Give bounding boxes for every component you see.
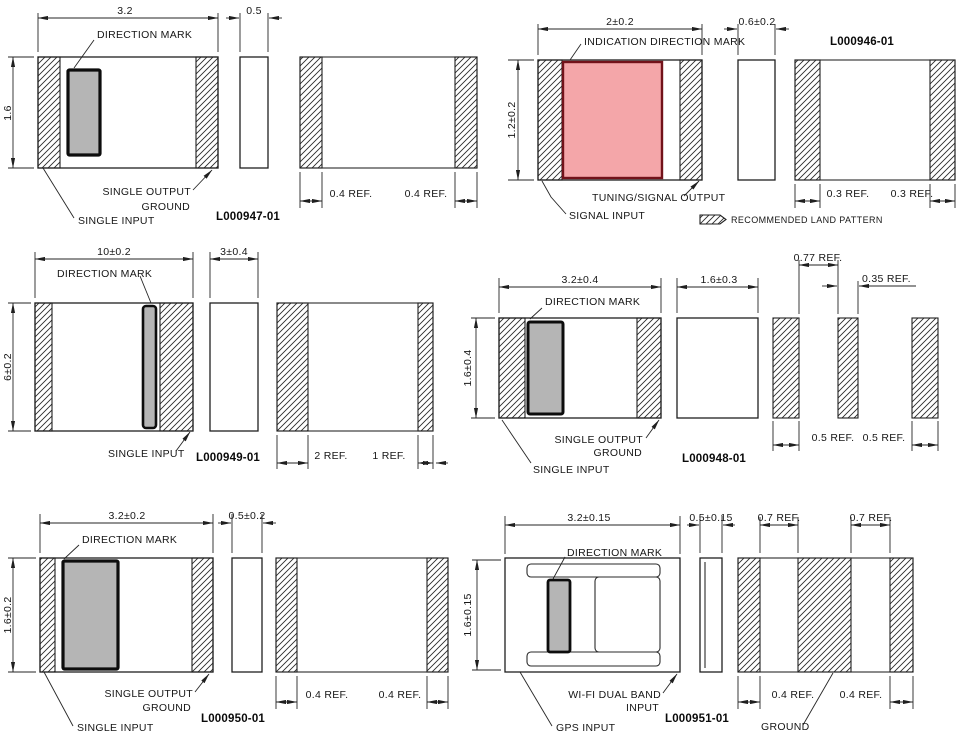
land-outline [276,558,448,672]
terminal-right [196,57,218,168]
land-pad-right [455,57,477,168]
direction-mark-label: DIRECTION MARK [545,296,640,308]
pad-left-dim-label: 0.5 REF. [812,432,855,444]
land-pad-center [838,318,858,418]
legend-label: RECOMMENDED LAND PATTERN [731,215,883,225]
front-view [40,558,213,672]
pad-right-dim-label: 1 REF. [372,450,405,462]
panel-L000949-01: 10±0.2 6±0.2 DIRECTION MARK SINGLE INPUT… [2,246,448,469]
side-body [232,558,262,672]
pad-left-dim-label: 0.4 REF. [330,188,373,200]
side-view: 0.5±0.15 [687,512,735,672]
front-view [538,60,702,180]
pad-right-dim-label: 0.4 REF. [840,689,883,701]
front-view [505,558,680,672]
gap-right-dim-label: 0.7 REF. [850,512,893,524]
part-number: L000948-01 [682,453,746,465]
body-top-contour [527,564,660,577]
input-label: SINGLE INPUT [77,722,154,734]
input-label: SINGLE INPUT [533,464,610,476]
dim-thickness-label: 0.5 [246,5,262,17]
dim-height-label: 6±0.2 [2,353,14,381]
pad-right-dim-label: 0.4 REF. [405,188,448,200]
part-number: L000947-01 [216,211,280,223]
dim-height-label: 1.2±0.2 [506,101,518,138]
panel-L000951-01: 3.2±0.15 1.6±0.15 DIRECTION MARK WI-FI D… [462,512,913,734]
pad-left-dim-label: 0.4 REF. [306,689,349,701]
land-pad-right [890,558,913,672]
pad-left-dim-label: 0.3 REF. [827,188,870,200]
output-label-line2: GROUND [143,702,192,714]
output-label-line1: WI-FI DUAL BAND [568,689,661,701]
dim-width-label: 3.2 [117,5,133,17]
land-pad-right [427,558,448,672]
land-pad-right [930,60,955,180]
part-number: L000946-01 [830,36,894,48]
dim-thickness-label: 0.5±0.15 [689,512,732,524]
panel-L000947-01: 3.2 1.6 DIRECTION MARK SINGLE OUTPUT GRO… [2,5,477,227]
side-view: 0.5 [226,5,282,168]
terminal-left [499,318,525,418]
body-bottom-contour [527,652,660,666]
land-outline [300,57,477,168]
dim-width-label: 2±0.2 [606,16,634,28]
direction-mark-label: DIRECTION MARK [567,547,662,559]
output-label-line1: SINGLE OUTPUT [555,434,644,446]
terminal-right [637,318,661,418]
output-label-line2: GROUND [142,201,191,213]
input-label: GPS INPUT [556,722,616,734]
direction-mark [63,561,118,669]
front-view [499,318,661,418]
side-view: 3±0.4 [210,246,258,431]
direction-mark [528,322,563,414]
pad-right-dim-label: 0.5 REF. [863,432,906,444]
dim-width-label: 3.2±0.4 [561,274,598,286]
part-number: L000951-01 [665,713,729,725]
output-label-line1: SINGLE OUTPUT [105,688,194,700]
land-pad-left [277,303,308,431]
dim-thickness-label: 0.5±0.2 [228,510,265,522]
terminal-right [680,60,702,180]
pad-left-dim-label: 0.4 REF. [772,689,815,701]
land-pattern: 2 REF. 1 REF. [277,303,448,469]
direction-mark-label: INDICATION DIRECTION MARK [584,36,745,48]
terminal-left [35,303,52,431]
side-body [677,318,758,418]
part-number: L000950-01 [201,713,265,725]
panel-L000946-01: 2±0.2 1.2±0.2 INDICATION DIRECTION MARK … [506,16,955,225]
dim-height-label: 1.6±0.15 [462,593,474,636]
land-pad-center [798,558,851,672]
side-body [240,57,268,168]
input-label: SINGLE INPUT [108,448,185,460]
package-body [505,558,680,672]
dim-thickness-label: 3±0.4 [220,246,248,258]
land-pad-left [300,57,322,168]
side-body [738,60,775,180]
output-label-line2: INPUT [626,702,659,714]
land-pad-right [912,318,938,418]
ground-label: GROUND [761,721,810,733]
terminal-left [38,57,60,168]
terminal-left [538,60,562,180]
land-pattern: 0.3 REF. 0.3 REF. [795,60,955,208]
front-view [38,57,218,168]
pad-left-dim-label: 2 REF. [314,450,347,462]
terminal-left [40,558,55,672]
center-pad-dim-label: 0.35 REF. [862,273,911,285]
land-pattern: 0.7 REF. 0.7 REF. 0.4 REF. 0.4 REF. [738,512,913,709]
dim-width-label: 10±0.2 [97,246,131,258]
land-pad-left [276,558,297,672]
output-label-line1: SINGLE OUTPUT [103,186,192,198]
package-drawings-canvas: 3.2 1.6 DIRECTION MARK SINGLE OUTPUT GRO… [0,0,965,737]
panel-L000950-01: 3.2±0.2 1.6±0.2 DIRECTION MARK SINGLE OU… [2,510,448,734]
output-label-line2: GROUND [594,447,643,459]
land-pad-left [795,60,820,180]
indication-direction-mark [563,62,662,178]
panel-L000948-01: 3.2±0.4 1.6±0.4 DIRECTION MARK SINGLE OU… [462,252,938,476]
input-label: SINGLE INPUT [78,215,155,227]
land-pattern: 0.4 REF. 0.4 REF. [300,57,477,208]
direction-mark-label: DIRECTION MARK [57,268,152,280]
direction-mark-label: DIRECTION MARK [82,534,177,546]
drawing-sheet: 3.2 1.6 DIRECTION MARK SINGLE OUTPUT GRO… [0,0,965,737]
gap-left-dim-label: 0.7 REF. [758,512,801,524]
land-pattern: 0.4 REF. 0.4 REF. [276,558,448,709]
legend: RECOMMENDED LAND PATTERN [700,215,883,225]
direction-mark [548,580,570,652]
dim-height-label: 1.6±0.2 [2,596,14,633]
package-body [38,57,218,168]
dim-thickness-label: 0.6±0.2 [738,16,775,28]
land-pattern-swatch-icon [700,215,726,224]
side-view: 0.5±0.2 [218,510,276,672]
part-number: L000949-01 [196,452,260,464]
pad-right-dim-label: 0.3 REF. [891,188,934,200]
dim-width-label: 3.2±0.15 [567,512,610,524]
pad-right-dim-label: 0.4 REF. [379,689,422,701]
direction-mark-label: DIRECTION MARK [97,29,192,41]
land-pad-left [773,318,799,418]
land-pad-left [738,558,760,672]
dim-height-label: 1.6 [2,105,14,121]
direction-mark [68,70,100,155]
input-label: SIGNAL INPUT [569,210,645,222]
body-center-contour [595,577,660,652]
dim-height-label: 1.6±0.4 [462,349,474,386]
dim-width-label: 3.2±0.2 [108,510,145,522]
side-body [700,558,722,672]
front-view [35,303,193,431]
output-label: TUNING/SIGNAL OUTPUT [592,192,726,204]
land-pad-right [418,303,433,431]
land-pattern: 0.77 REF. 0.35 REF. 0.5 REF. 0.5 REF. [773,252,938,451]
terminal-right [192,558,213,672]
side-view: 1.6±0.3 [677,274,758,418]
direction-mark [143,306,156,428]
terminal-right [160,303,193,431]
pad-gap-dim-label: 0.77 REF. [794,252,843,264]
dim-thickness-label: 1.6±0.3 [700,274,737,286]
side-body [210,303,258,431]
